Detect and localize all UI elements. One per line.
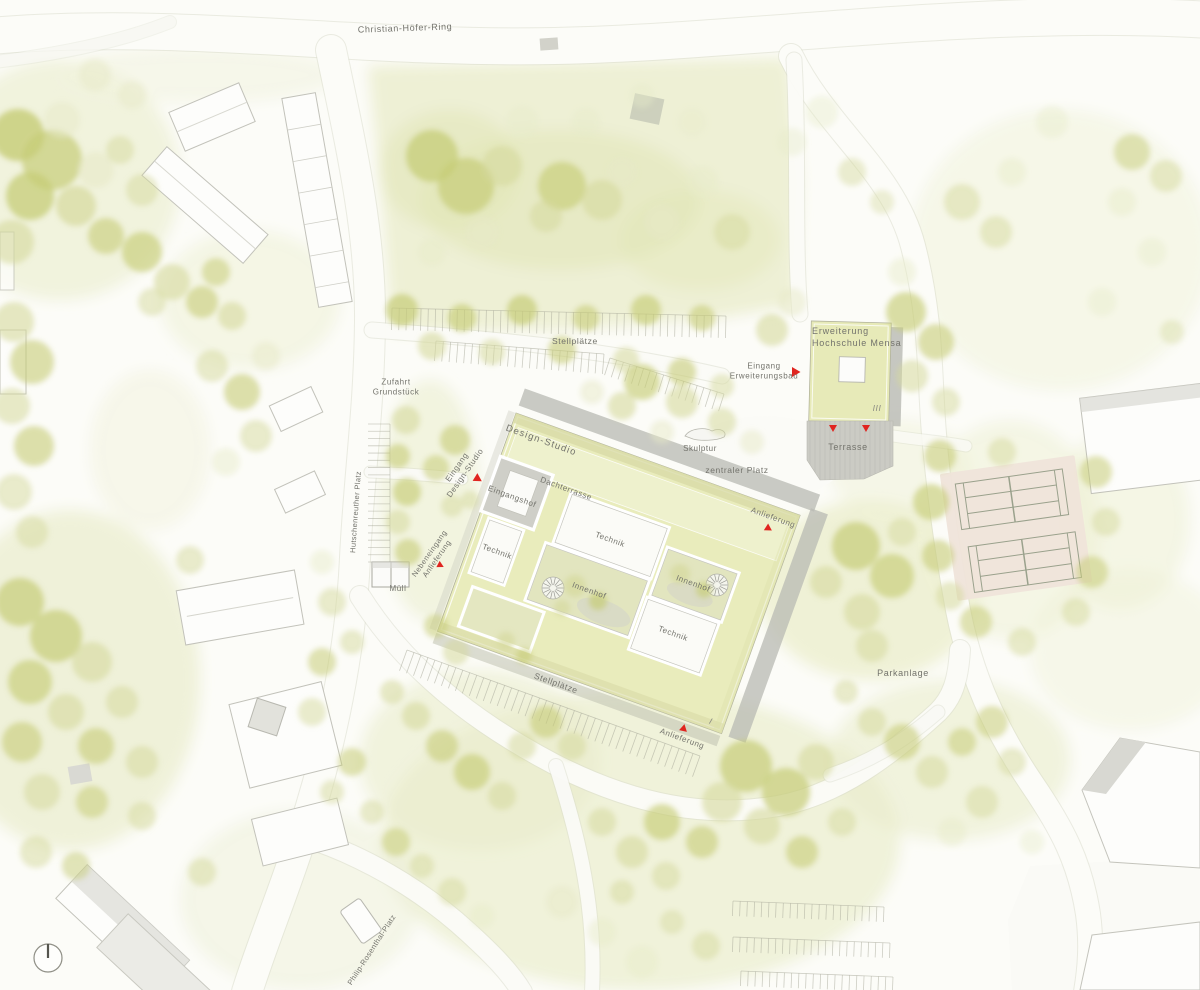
waste-enclosure <box>372 562 409 587</box>
site-plan: Christian-Höfer-Ring Stellplätze Zufahrt… <box>0 0 1200 990</box>
site-plan-canvas <box>0 0 1200 990</box>
mensa-extension-building <box>807 321 903 480</box>
tennis-courts <box>940 455 1092 601</box>
north-arrow-icon <box>34 944 62 972</box>
mensa-skylight <box>839 357 866 383</box>
